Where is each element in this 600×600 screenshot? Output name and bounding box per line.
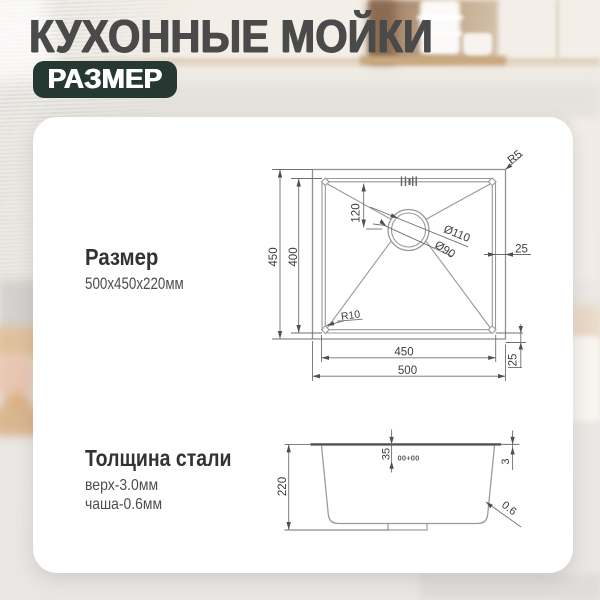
- svg-text:Ø90: Ø90: [432, 239, 457, 261]
- svg-text:220: 220: [277, 477, 289, 496]
- svg-text:450: 450: [268, 247, 280, 266]
- svg-text:25: 25: [515, 244, 528, 256]
- svg-text:500: 500: [398, 365, 417, 377]
- svg-text:3: 3: [500, 458, 512, 464]
- svg-text:25: 25: [508, 354, 520, 367]
- svg-text:R5: R5: [506, 148, 525, 167]
- svg-text:35: 35: [380, 448, 392, 460]
- svg-text:400: 400: [288, 247, 300, 266]
- svg-text:120: 120: [351, 203, 363, 222]
- svg-text:0.6: 0.6: [499, 499, 518, 518]
- svg-text:R10: R10: [340, 308, 361, 323]
- svg-text:Ø110: Ø110: [442, 224, 472, 245]
- svg-text:450: 450: [394, 347, 413, 359]
- svg-text:00+00: 00+00: [397, 454, 419, 463]
